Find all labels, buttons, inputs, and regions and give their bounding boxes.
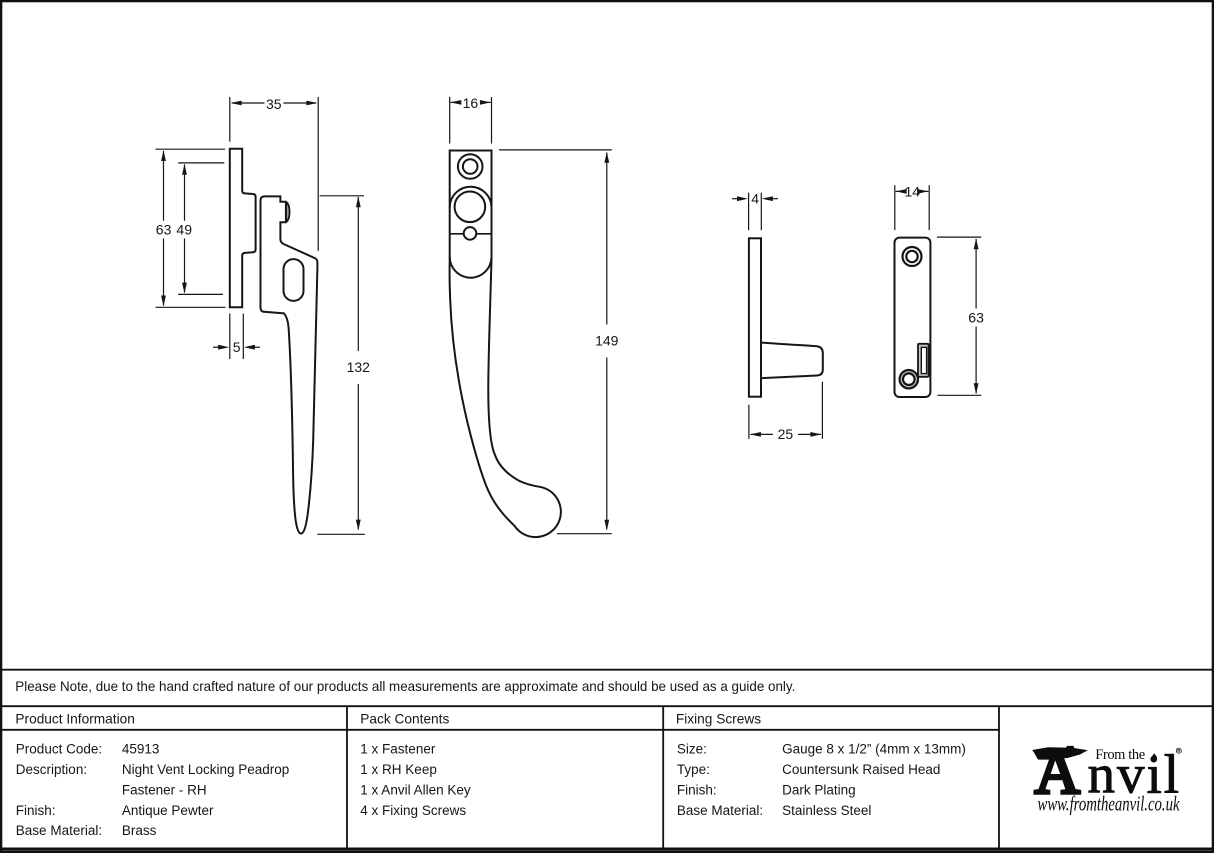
svg-text:Product Information: Product Information (15, 712, 134, 727)
svg-text:35: 35 (266, 96, 282, 112)
svg-text:Countersunk Raised Head: Countersunk Raised Head (782, 762, 940, 777)
svg-text:1 x Fastener: 1 x Fastener (360, 742, 436, 757)
svg-text:Base Material:: Base Material: (16, 823, 102, 838)
svg-text:Description:: Description: (16, 762, 87, 777)
svg-text:149: 149 (595, 333, 619, 349)
svg-text:Size:: Size: (677, 742, 707, 757)
svg-text:Fastener - RH: Fastener - RH (122, 782, 207, 797)
svg-text:Pack Contents: Pack Contents (360, 712, 449, 727)
svg-text:14: 14 (905, 184, 921, 200)
svg-text:Gauge 8 x 1/2” (4mm x 13mm): Gauge 8 x 1/2” (4mm x 13mm) (782, 742, 966, 757)
svg-text:49: 49 (176, 221, 192, 237)
svg-text:1 x RH Keep: 1 x RH Keep (360, 762, 437, 777)
svg-text:From the: From the (1095, 747, 1145, 763)
svg-text:Base Material:: Base Material: (677, 803, 763, 818)
svg-text:5: 5 (233, 339, 241, 355)
svg-text:63: 63 (156, 221, 172, 237)
svg-text:16: 16 (463, 95, 479, 111)
svg-text:www.fromtheanvil.co.uk: www.fromtheanvil.co.uk (1038, 791, 1180, 815)
svg-text:132: 132 (347, 359, 371, 375)
svg-text:Product Code:: Product Code: (16, 742, 102, 757)
svg-text:4: 4 (751, 191, 759, 207)
svg-text:4 x Fixing Screws: 4 x Fixing Screws (360, 803, 466, 818)
svg-text:Stainless Steel: Stainless Steel (782, 803, 871, 818)
svg-text:Please Note, due to the hand c: Please Note, due to the hand crafted nat… (15, 678, 795, 694)
svg-text:25: 25 (778, 426, 794, 442)
svg-text:1 x Anvil Allen Key: 1 x Anvil Allen Key (360, 782, 471, 797)
svg-text:63: 63 (968, 309, 984, 325)
svg-text:Fixing Screws: Fixing Screws (676, 712, 761, 727)
svg-text:Brass: Brass (122, 823, 157, 838)
svg-text:Finish:: Finish: (677, 782, 717, 797)
svg-text:45913: 45913 (122, 742, 160, 757)
svg-text:Finish:: Finish: (16, 803, 56, 818)
svg-text:Night Vent Locking Peadrop: Night Vent Locking Peadrop (122, 762, 289, 777)
svg-text:Type:: Type: (677, 762, 710, 777)
svg-text:Antique Pewter: Antique Pewter (122, 803, 214, 818)
svg-text:Dark Plating: Dark Plating (782, 782, 856, 797)
